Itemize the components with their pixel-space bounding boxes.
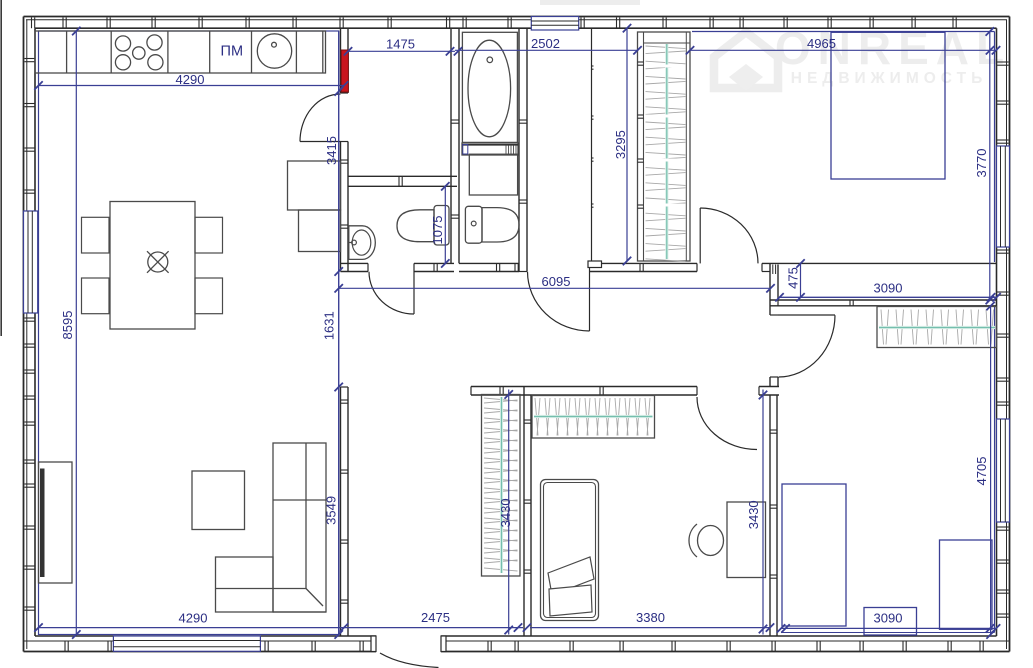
svg-text:3090: 3090 (874, 281, 903, 296)
svg-text:3430: 3430 (746, 500, 761, 529)
svg-text:ПМ: ПМ (221, 43, 244, 59)
svg-text:3295: 3295 (613, 130, 628, 159)
svg-text:1475: 1475 (386, 37, 415, 52)
svg-text:НЕДВИЖИМОСТЬ: НЕДВИЖИМОСТЬ (791, 70, 987, 87)
svg-text:3430: 3430 (498, 498, 513, 527)
svg-text:4290: 4290 (176, 72, 205, 87)
svg-text:475: 475 (786, 267, 801, 289)
svg-text:6095: 6095 (542, 274, 571, 289)
svg-text:3415: 3415 (324, 136, 339, 165)
svg-text:3549: 3549 (324, 496, 339, 525)
svg-text:1075: 1075 (430, 216, 445, 245)
svg-text:4290: 4290 (179, 610, 208, 625)
svg-text:4705: 4705 (974, 457, 989, 486)
svg-text:1631: 1631 (322, 311, 337, 340)
svg-text:8595: 8595 (60, 311, 75, 340)
svg-text:2502: 2502 (531, 36, 560, 51)
svg-text:2475: 2475 (421, 610, 450, 625)
svg-text:3380: 3380 (636, 610, 665, 625)
svg-text:3090: 3090 (874, 611, 903, 626)
svg-text:4965: 4965 (807, 36, 836, 51)
svg-text:3770: 3770 (974, 149, 989, 178)
